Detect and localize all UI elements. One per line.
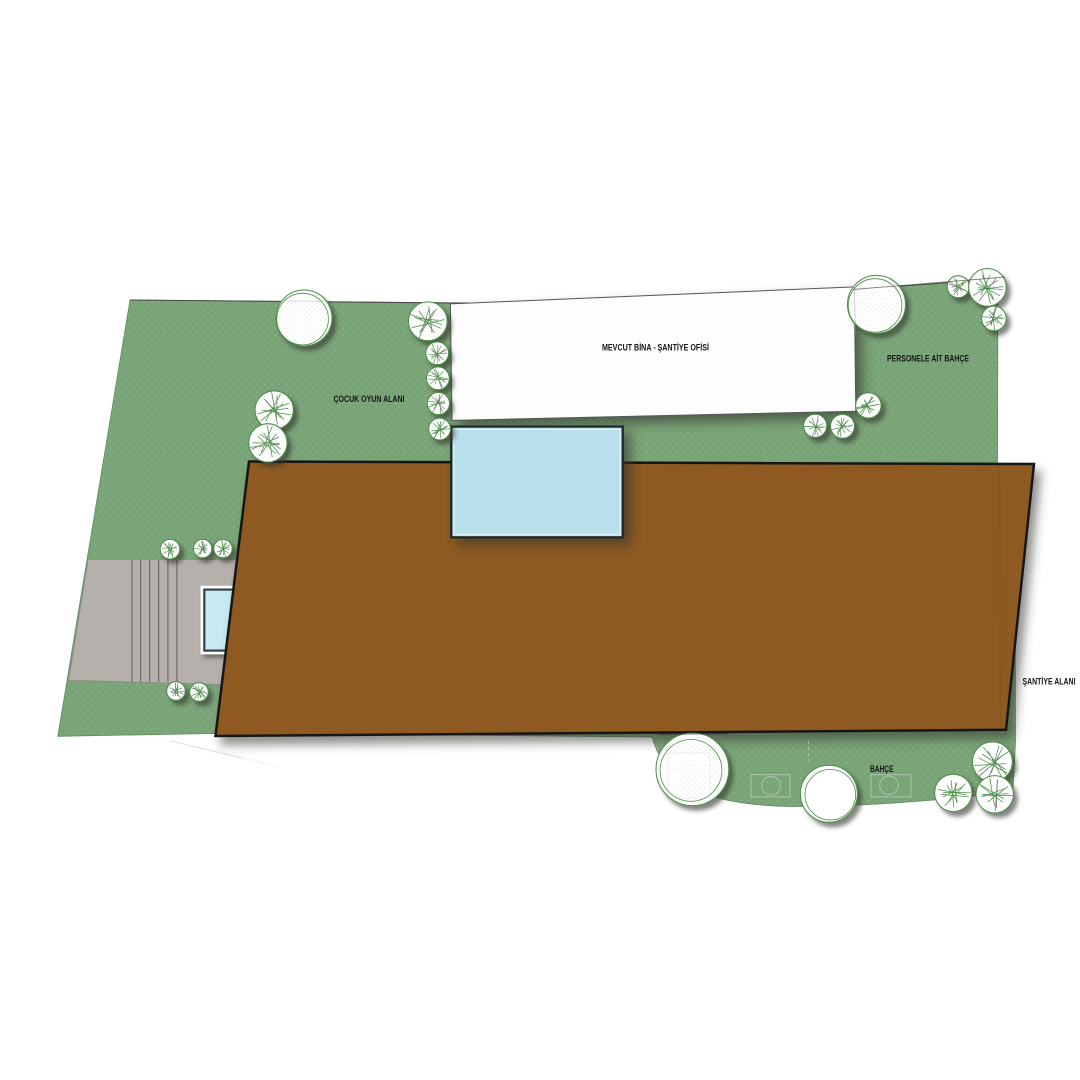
- svg-text:ÇOCUK OYUN ALANI: ÇOCUK OYUN ALANI: [334, 394, 405, 404]
- svg-text:PERSONELE AİT BAHÇE: PERSONELE AİT BAHÇE: [887, 353, 969, 363]
- svg-text:BAHÇE: BAHÇE: [870, 764, 894, 774]
- svg-text:ŞANTİYE ALANI: ŞANTİYE ALANI: [1023, 677, 1076, 687]
- svg-text:MEVCUT BİNA - ŞANTİYE OFİSİ: MEVCUT BİNA - ŞANTİYE OFİSİ: [602, 343, 709, 353]
